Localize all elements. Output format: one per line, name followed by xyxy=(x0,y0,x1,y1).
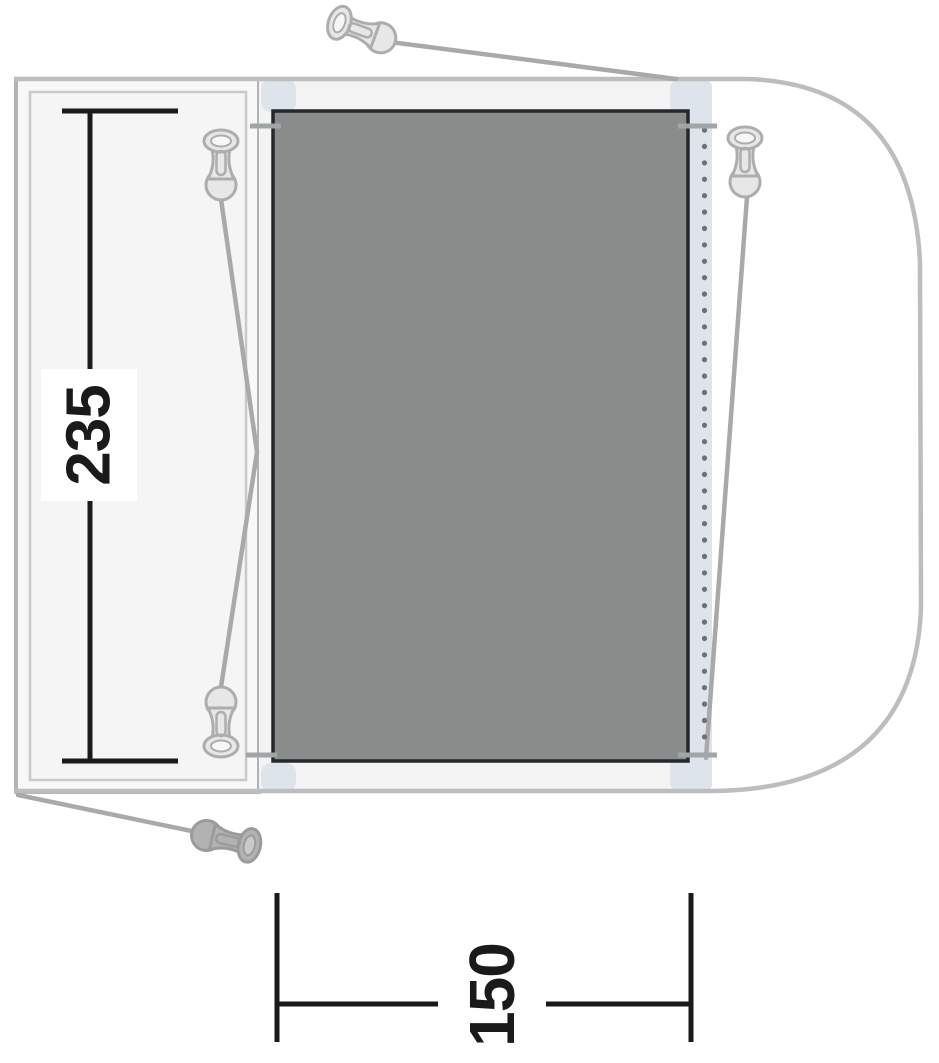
guy-line-right xyxy=(706,197,747,758)
dimension-label-depth: 235 xyxy=(41,369,137,501)
floorplan-diagram: 235 150 xyxy=(0,0,939,1063)
guy-line-bottom xyxy=(18,795,206,834)
corner-sleeve-bottom-left xyxy=(261,763,296,792)
groundsheet xyxy=(273,111,688,761)
dimension-depth-value: 235 xyxy=(54,385,125,485)
guy-line-top xyxy=(390,42,676,79)
connector-strip xyxy=(689,79,712,792)
tent-peg-icon xyxy=(188,816,264,865)
corner-sleeve-top-left xyxy=(261,79,296,112)
floorplan-canvas xyxy=(0,0,939,1063)
dimension-label-width: 150 xyxy=(438,927,546,1063)
tent-peg-icon xyxy=(728,127,762,197)
tent-peg-icon xyxy=(323,3,400,59)
dimension-width-value: 150 xyxy=(455,943,529,1047)
